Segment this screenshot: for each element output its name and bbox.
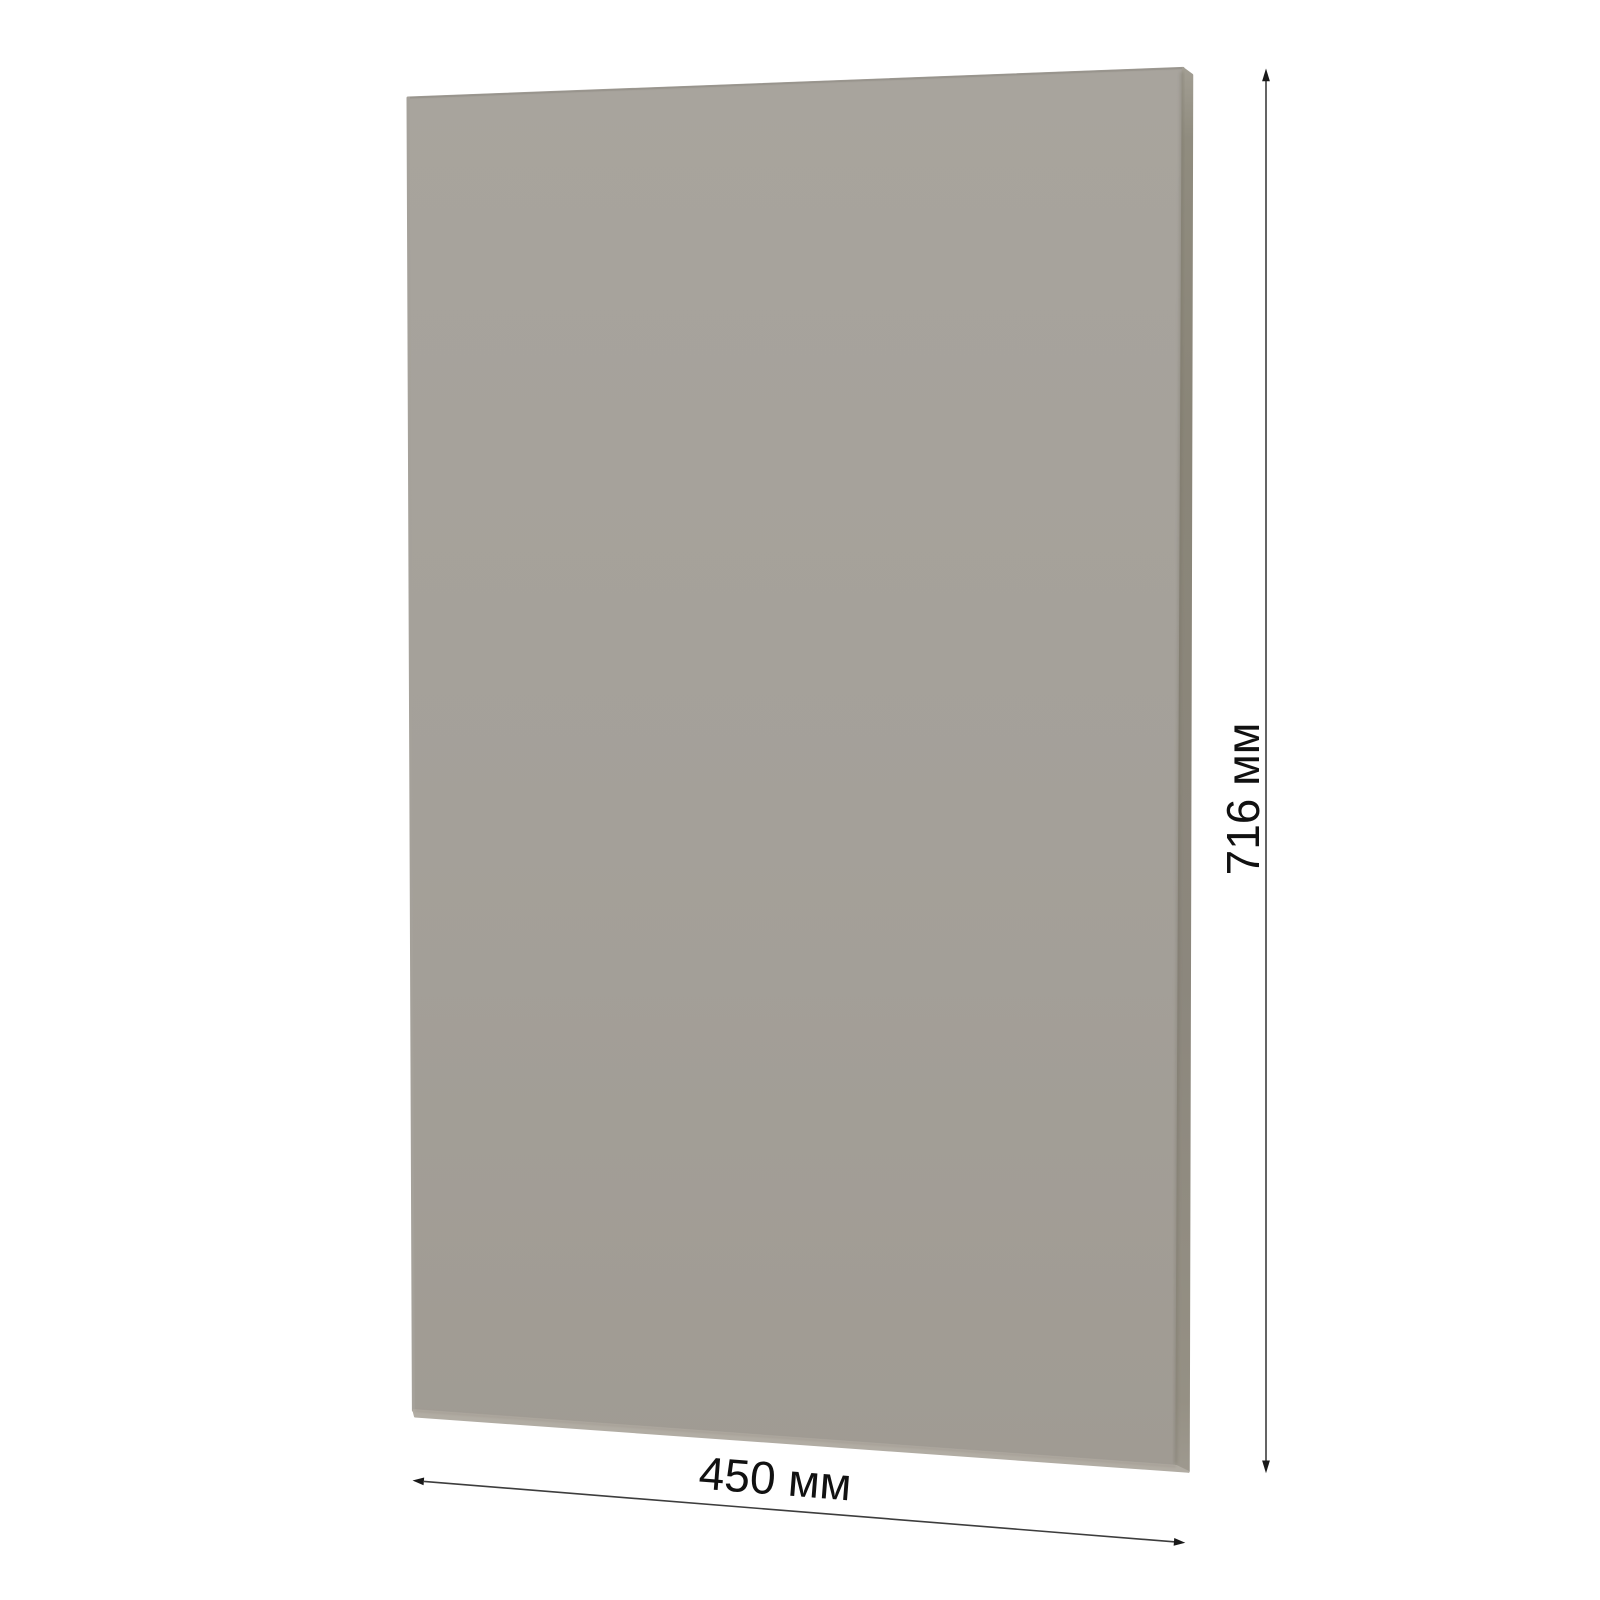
svg-text:716 мм: 716 мм	[1217, 723, 1269, 876]
